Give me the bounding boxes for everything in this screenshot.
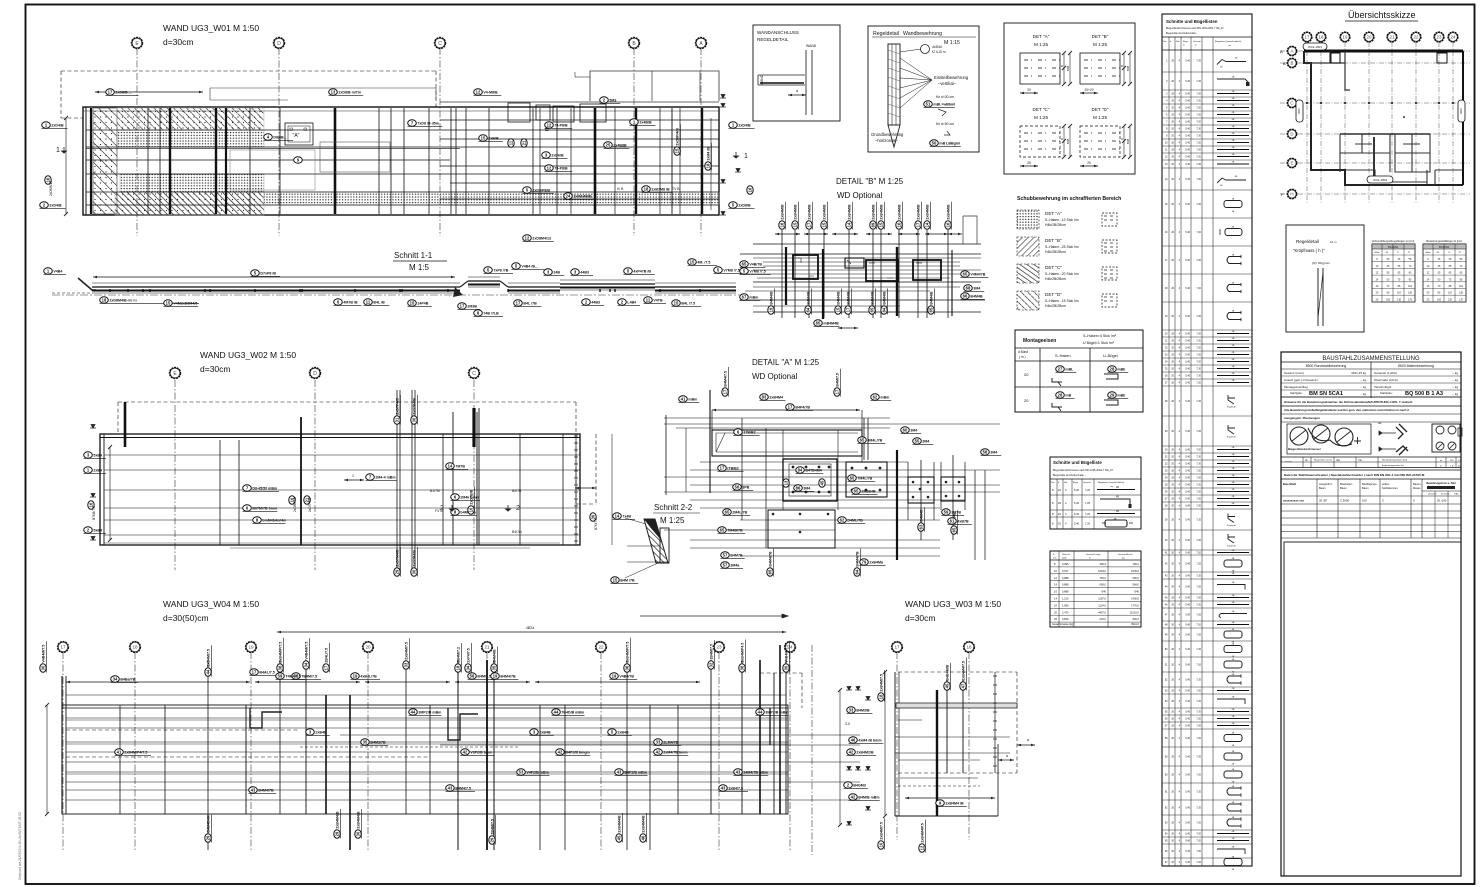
svg-text:7,20: 7,20 [1196,634,1201,637]
svg-text:B4L /7.5: B4L /7.5 [681,302,695,306]
svg-text:V4B4M/7.5: V4B4M/7.5 [42,645,46,663]
svg-text:7,20: 7,20 [1196,850,1201,853]
svg-text:7,20: 7,20 [1196,287,1201,290]
svg-text:7,20: 7,20 [1196,614,1201,617]
svg-text:Masse: Masse [1413,486,1421,490]
svg-text:86: 86 [796,486,801,491]
svg-text:Einstellbewehrung: Einstellbewehrung [934,75,969,80]
svg-text:5,40: 5,40 [1185,178,1190,181]
svg-text:5,40: 5,40 [1185,114,1190,117]
svg-text:"A": "A" [293,133,300,139]
svg-text:mBm: mBm [749,296,758,300]
svg-text:65: 65 [816,321,821,326]
svg-text:170: 170 [1408,298,1413,301]
svg-text:7,20: 7,20 [1196,203,1201,206]
svg-text:5,40: 5,40 [1185,491,1190,494]
svg-text:V4M4/7B: V4M4/7B [970,273,985,277]
svg-text:Gesamt-Masse: Gesamt-Masse [1118,553,1134,556]
svg-text:2xB4M/7.5: 2xB4M/7.5 [880,674,884,692]
svg-text:Schnitte und Bügelliste: Schnitte und Bügelliste [1053,460,1102,465]
svg-text:32: 32 [709,662,714,667]
svg-text:4xP47B /B: 4xP47B /B [633,270,651,274]
svg-text:45: 45 [617,835,622,840]
svg-text:17: 17 [60,645,66,650]
svg-text:7,20: 7,20 [1196,456,1201,459]
svg-text:mBL=wBbml: mBL=wBbml [933,103,955,107]
svg-text:42: 42 [851,795,856,800]
svg-text:4B: 4B [1116,496,1119,499]
svg-text:5,40: 5,40 [1074,488,1080,492]
svg-text:...: ... [1374,392,1377,396]
svg-text:5,40: 5,40 [1185,737,1190,740]
svg-text:für d=50 cm: für d=50 cm [936,122,954,126]
svg-text:43: 43 [736,770,741,775]
svg-text:B4M4/B: B4M4/B [770,291,774,305]
svg-text:B4M /7B: B4M /7B [620,579,635,583]
svg-text:36: 36 [625,665,630,670]
svg-text:T4M4/7.5: T4M4/7.5 [285,675,300,679]
svg-text:V4B4M/7.5: V4B4M/7.5 [785,645,789,663]
svg-text:12: 12 [920,845,925,850]
svg-text:4xB4d: 4xB4d [932,45,942,49]
svg-text:5,40: 5,40 [1185,333,1190,336]
svg-text:B4B: B4B [1066,66,1070,71]
svg-text:7,20: 7,20 [1085,512,1091,516]
svg-text:2xB4M/B: 2xB4M/B [872,204,876,220]
svg-text:2xB4M/P4.5: 2xB4M/P4.5 [741,643,745,663]
svg-text:24: 24 [566,194,571,199]
svg-text:2xB4M4/B: 2xB4M4/B [357,811,361,829]
svg-text:20+20: 20+20 [1085,88,1094,92]
svg-text:F': F' [1281,192,1284,197]
svg-text:2M4L/7B: 2M4L/7B [732,511,747,515]
svg-text:28: 28 [1058,393,1063,398]
svg-text:42: 42 [656,750,661,755]
svg-text:B: B [1120,138,1124,140]
svg-text:17: 17 [324,665,329,670]
svg-text:1,210: 1,210 [1062,597,1069,601]
svg-text:Verbundübergreifungslängen Lü: Verbundübergreifungslängen Lü [cm] [1372,239,1415,243]
svg-text:d/Stm: d/Stm [1425,251,1431,254]
svg-text:B4M4/7B: B4M4/7B [769,551,773,567]
svg-text:Biegeform (unmaßstäblich): Biegeform (unmaßstäblich) [1215,40,1242,43]
svg-text:B4M3/7B: B4M3/7B [370,741,386,745]
svg-text:5,40: 5,40 [1185,774,1190,777]
svg-text:WAND: WAND [806,44,817,48]
svg-text:5,40: 5,40 [1185,100,1190,103]
svg-text:7,20: 7,20 [1196,142,1201,145]
svg-text:5,40: 5,40 [1185,354,1190,357]
svg-text:2xB4M/B: 2xB4M/B [880,204,884,220]
svg-text:mBm: mBm [880,396,889,400]
svg-text:65: 65 [742,262,747,267]
svg-text:5,40: 5,40 [1185,552,1190,555]
svg-text:5,40: 5,40 [1185,368,1190,371]
svg-text:5,40: 5,40 [1185,505,1190,508]
svg-text:18: 18 [1319,35,1324,40]
svg-text:1: 1 [352,474,354,478]
svg-text:V7M8 /7.5: V7M8 /7.5 [723,269,739,273]
svg-text:13: 13 [331,90,336,95]
svg-text:5,40: 5,40 [1074,501,1080,505]
svg-text:17: 17 [807,222,812,227]
svg-text:46: 46 [851,738,856,743]
svg-text:B4M7B: B4M7B [730,554,743,558]
svg-text:7,20: 7,20 [1196,822,1201,825]
svg-text:2xB4M2/B: 2xB4M2/B [856,751,874,755]
svg-text:DET "A": DET "A" [1045,211,1062,216]
svg-text:7,20: 7,20 [1196,400,1201,403]
svg-text:3MP2/B mBm: 3MP2/B mBm [418,711,441,715]
svg-text:B4B: B4B [1126,139,1130,144]
svg-text:65: 65 [929,307,934,312]
svg-text:20: 20 [1024,372,1029,377]
svg-text:2,470: 2,470 [1062,610,1069,614]
svg-text:44: 44 [411,710,416,715]
svg-text:5,40: 5,40 [1074,522,1080,526]
svg-text:15: 15 [793,222,798,227]
svg-text:17: 17 [460,304,465,309]
svg-text:2xB4M/P/7.5: 2xB4M/P/7.5 [279,642,283,663]
svg-text:2xB4M4/B: 2xB4M4/B [336,811,340,829]
svg-text:110: 110 [1459,285,1463,288]
svg-text:7B4M/7.5: 7B4M/7.5 [301,675,317,679]
svg-text:65: 65 [963,272,968,277]
svg-text:WD Optional: WD Optional [752,372,798,381]
svg-text:41: 41 [681,397,686,402]
svg-text:-540: -540 [1101,590,1107,594]
svg-text:29: 29 [206,835,211,840]
svg-text:14: 14 [448,464,453,469]
svg-text:14: 14 [847,222,852,227]
svg-text:Biegemaße sind Außenmaße ↓: Biegemaße sind Außenmaße ↓ [1053,474,1086,477]
svg-text:7,20: 7,20 [1196,149,1201,152]
svg-text:7,20: 7,20 [1196,737,1201,740]
svg-text:20: 20 [1087,161,1091,165]
svg-text:584,0: 584,0 [1133,583,1140,587]
svg-text:1: 1 [744,153,748,160]
svg-text:M 1:15: M 1:15 [944,40,960,46]
svg-text:7,20: 7,20 [1196,519,1201,522]
svg-text:31: 31 [395,417,400,422]
svg-text:30: 30 [356,831,361,836]
svg-text:3M7B: 3M7B [951,511,961,515]
svg-text:18: 18 [102,298,107,303]
svg-text:DETAIL "B" M 1:25: DETAIL "B" M 1:25 [836,177,904,186]
svg-text:C: C [472,371,476,377]
svg-text:30: 30 [784,665,789,670]
svg-text:135: 135 [1459,292,1464,295]
svg-text:7,20: 7,20 [1196,128,1201,131]
svg-text:7M4L/7B: 7M4L/7B [857,477,872,481]
svg-text:7,20: 7,20 [1196,114,1201,117]
svg-text:7,20: 7,20 [1196,354,1201,357]
svg-text:UG3–W04: UG3–W04 [1373,178,1387,182]
svg-text:17: 17 [723,389,728,394]
svg-text:1124,0: 1124,0 [1098,603,1106,607]
svg-text:12: 12 [547,166,552,171]
svg-text:Montagezuschlag: Montagezuschlag [1284,385,1308,389]
svg-text:WAND UG3_W03 M 1:50: WAND UG3_W03 M 1:50 [905,599,1001,609]
svg-text:V3P2/B bmm: V3P2/B bmm [470,751,492,755]
svg-text:2xB4B: 2xB4B [315,731,327,735]
svg-text:7,20: 7,20 [1196,470,1201,473]
svg-text:DET "D": DET "D" [1092,107,1109,112]
svg-text:B4M4/7B: B4M4/7B [500,675,516,679]
svg-text:Biegerollendurchmesser: Biegerollendurchmesser [1288,447,1322,451]
svg-text:69: 69 [871,222,876,227]
svg-text:53: 53 [519,770,524,775]
svg-text:135: 135 [1408,292,1413,295]
svg-text:Büge: Büge [1073,482,1079,484]
svg-text:Bewehrungsstoßlängen ls [cm]: Bewehrungsstoßlängen ls [cm] [1426,239,1462,243]
svg-text:30: 30 [412,417,417,422]
svg-text:19: 19 [1343,35,1348,40]
svg-text:U–Bügel: U–Bügel [1103,354,1118,358]
svg-text:65: 65 [854,489,859,494]
svg-text:2xD7P4/B: 2xD7P4/B [308,498,312,512]
svg-text:kg/m: kg/m [1062,558,1067,560]
svg-text:18: 18 [879,694,884,699]
svg-text:7,20: 7,20 [1196,539,1201,542]
svg-text:65: 65 [870,307,875,312]
svg-text:B4/7m: B4/7m [512,530,522,534]
svg-text:4M7B /B: 4M7B /B [343,301,358,305]
svg-text:2xD4/B: 2xD4/B [49,204,62,208]
svg-text:Alle Bewehrungsstöße/Bügelabst: Alle Bewehrungsstöße/Bügelabstände wurde… [1284,408,1409,412]
svg-text:H4b/2B/2Bcm: H4b/2B/2Bcm [1045,304,1066,308]
svg-text:15: 15 [836,307,841,312]
svg-text:7,20: 7,20 [1196,597,1201,600]
svg-text:2xD8M4/13: 2xD8M4/13 [532,237,551,241]
svg-text:7M4B/7B: 7M4B/7B [727,529,743,533]
svg-text:5,40: 5,40 [1185,833,1190,836]
svg-text:...: ... [1284,392,1287,396]
svg-text:B4TB4M4: B4TB4M4 [805,469,821,473]
svg-text:B4M4/7.5: B4M4/7.5 [724,371,728,387]
svg-text:2M3B: 2M3B [467,305,477,309]
svg-text:17B/B2: 17B/B2 [743,431,755,435]
svg-text:5,40: 5,40 [1185,791,1190,794]
svg-text:5,40: 5,40 [1185,711,1190,714]
svg-text:4B: 4B [1116,510,1119,513]
svg-text:B4M4/B: B4M4/B [930,291,934,305]
svg-text:7,20: 7,20 [1196,679,1201,682]
svg-text:5,40: 5,40 [1185,725,1190,728]
svg-text:5,40: 5,40 [1185,861,1190,864]
svg-text:d=30cm: d=30cm [200,364,230,374]
svg-text:V4B4: V4B4 [53,270,62,274]
svg-text:2xD8/B/15: 2xD8/B/15 [49,181,53,196]
svg-text:36: 36 [740,665,745,670]
svg-text:3,850: 3,850 [1062,617,1069,621]
svg-text:33: 33 [404,662,409,667]
svg-text:mBL: mBL [1065,368,1074,372]
svg-text:3M4: 3M4 [910,429,917,433]
svg-text:S–Haken...25 Stck /m²: S–Haken...25 Stck /m² [1045,245,1080,249]
svg-text:15: 15 [674,301,679,306]
svg-text:2xD8/B ...: 2xD8/B ... [115,91,131,95]
svg-text:46: 46 [641,835,646,840]
svg-text:m: m [1089,558,1091,560]
svg-text:60: 60 [903,428,908,433]
svg-text:B1/7M: B1/7M [430,489,440,493]
svg-text:7,20: 7,20 [1196,382,1201,385]
svg-text:8600 Mattenbewehrung: 8600 Mattenbewehrung [1398,364,1434,368]
svg-text:16: 16 [780,222,785,227]
svg-text:7,20: 7,20 [1196,575,1201,578]
svg-text:5,40: 5,40 [1185,718,1190,721]
svg-text:17: 17 [788,405,793,410]
svg-text:45: 45 [945,683,950,688]
svg-text:2xB4M/7.5: 2xB4M/7.5 [207,649,211,667]
svg-text:5,40: 5,40 [1185,93,1190,96]
svg-text:66: 66 [963,294,968,299]
svg-text:21: 21 [522,140,527,145]
svg-text:REGELDETAIL: REGELDETAIL [757,37,789,42]
svg-text:B4B: B4B [1066,139,1070,144]
svg-text:2xD7P4/B: 2xD7P4/B [413,398,417,415]
svg-text:14: 14 [615,514,620,519]
svg-text:1,580: 1,580 [1062,603,1069,607]
svg-text:2B4L/7.5: 2B4L/7.5 [325,648,329,663]
svg-text:7,20: 7,20 [1196,80,1201,83]
svg-text:Verschnittgür: Verschnittgür [1374,385,1392,389]
svg-text:V4B4 /B...: V4B4 /B... [521,265,538,269]
svg-text:2xD8M4/B 4TB /7.5: 2xD8M4/B 4TB /7.5 [109,299,137,303]
svg-text:–horizontal–: –horizontal– [875,138,898,143]
svg-text:2xB4M4/B: 2xB4M4/B [642,815,646,833]
svg-text:Stk.: Stk. [1176,40,1180,43]
svg-text:5,40: 5,40 [1185,539,1190,542]
svg-text:57: 57 [723,553,728,558]
svg-text:WANDANSCHLUSS: WANDANSCHLUSS [757,30,799,35]
svg-text:2M4-4 mBm: 2M4-4 mBm [375,476,395,480]
svg-text:2xB4M4: 2xB4M4 [769,396,783,400]
svg-text:5,40: 5,40 [1185,624,1190,627]
svg-text:DETAIL "A" M 1:25: DETAIL "A" M 1:25 [752,358,820,367]
svg-text:1694,0: 1694,0 [1098,569,1106,573]
svg-text:1045,0: 1045,0 [1131,569,1139,573]
svg-text:10: 10 [879,842,884,847]
svg-text:5,40: 5,40 [1185,430,1190,433]
svg-text:2xB4M/B: 2xB4M/B [808,204,812,220]
svg-text:2B4M/7.5: 2B4M/7.5 [491,819,495,835]
svg-text:– kg: – kg [1452,378,1458,382]
svg-text:WD Optional: WD Optional [837,191,883,200]
svg-text:D: D [1290,132,1293,137]
svg-text:3M4a: 3M4a [730,564,740,568]
svg-text:5,40: 5,40 [1185,807,1190,810]
svg-text:Hinweise für die Bewehrungsabn: Hinweise für die Bewehrungsabnahme: die … [1284,400,1413,404]
svg-text:Gedruckt am 21/05/13 9:46 Uhr: Gedruckt am 21/05/13 9:46 Uhr BV71/MT-05… [18,812,22,880]
svg-text:5,40: 5,40 [1185,519,1190,522]
svg-text:_____: _____ [1284,459,1293,462]
svg-text:1776,0: 1776,0 [1131,603,1139,607]
svg-text:1: 1 [56,147,60,154]
svg-text:C 5000: C 5000 [1340,499,1349,503]
svg-text:B4B: B4B [1126,66,1130,71]
svg-text:Regeldetail: Regeldetail [873,31,899,37]
svg-text:16: 16 [748,187,753,192]
svg-text:7,20: 7,20 [1196,315,1201,318]
svg-text:7,20: 7,20 [1196,840,1201,843]
svg-text:105: 105 [1437,298,1442,301]
svg-text:5,40: 5,40 [1185,850,1190,853]
svg-text:Bau-Stahl: Bau-Stahl [1283,482,1296,486]
svg-text:DET "D": DET "D" [1045,292,1062,297]
svg-text:33: 33 [849,708,854,713]
svg-text:23: 23 [716,645,722,650]
svg-text:B4B4M/B: B4B4M/B [946,664,950,680]
svg-text:28: 28 [1110,367,1115,372]
svg-text:3PB: 3PB [742,486,749,490]
svg-text:2xB4Ma: 2xB4Ma [869,561,884,565]
svg-text:11: 11 [509,140,514,145]
svg-text:5,40: 5,40 [1185,287,1190,290]
svg-text:2xD7P4/B: 2xD7P4/B [413,550,417,567]
svg-text:7,20: 7,20 [1196,259,1201,262]
svg-text:"Kröpfmass ( h )": "Kröpfmass ( h )" [1293,248,1325,253]
svg-text:24M4/7B mBm: 24M4/7B mBm [743,771,768,775]
svg-text:43: 43 [251,788,256,793]
svg-text:16: 16 [946,222,951,227]
svg-text:B4M4/B: B4M4/B [807,291,811,305]
svg-text:B4M4/7B: B4M4/7B [258,789,274,793]
svg-text:[h]= 30(g)mm: [h]= 30(g)mm [1312,261,1330,265]
svg-text:Stahlgüte:: Stahlgüte: [1380,391,1393,395]
svg-text:7,20: 7,20 [1196,833,1201,836]
svg-text:Krüpfmaß: Krüpfmaß [1227,437,1237,439]
svg-text:27: 27 [1058,367,1063,372]
svg-text:2xP4/7.5: 2xP4/7.5 [467,648,471,662]
svg-text:34: 34 [113,677,118,682]
svg-text:5,40: 5,40 [1185,648,1190,651]
svg-text:C: C [438,41,442,47]
svg-text:DET "B": DET "B" [1045,238,1062,243]
svg-text:mB4M4B: mB4M4B [823,322,839,326]
svg-text:cm: cm [1110,486,1113,488]
svg-text:19: 19 [248,645,254,650]
svg-text:D7xP8 /B: D7xP8 /B [260,272,276,276]
svg-text:4xB7B: 4xB7B [957,520,969,524]
svg-text:7,20: 7,20 [1196,375,1201,378]
svg-text:Baum: Baum [1340,486,1347,490]
svg-text:Übergreifungslängen [cm]: Übergreifungslängen [cm] [1382,459,1407,462]
svg-text:Gesamt (norm): Gesamt (norm) [1284,371,1304,375]
svg-text:51: 51 [926,102,931,107]
svg-text:15: 15 [410,301,415,306]
svg-text:170: 170 [1459,298,1464,301]
svg-text:a: a [1027,738,1029,742]
svg-text:5,40: 5,40 [1185,231,1190,234]
svg-text:34: 34 [466,665,471,670]
svg-text:395,0: 395,0 [1100,562,1107,566]
svg-text:5,40: 5,40 [1185,604,1190,607]
svg-text:2xB4M4/7.5: 2xB4M4/7.5 [962,661,966,681]
svg-text:110: 110 [1397,292,1401,295]
svg-text:-540: -540 [1134,590,1140,594]
svg-text:3941,45 kg: 3941,45 kg [1351,371,1366,375]
svg-text:65: 65 [768,569,773,574]
svg-text:W03: W03 [1459,108,1463,114]
svg-text:7,20: 7,20 [1196,121,1201,124]
svg-text:4B2a: 4B2a [526,626,534,630]
svg-text:B4L /B: B4L /B [373,301,385,305]
svg-text:5,40: 5,40 [1185,664,1190,667]
svg-text:B4M4/B: B4M4/B [871,291,875,305]
svg-text:83: 83 [762,395,767,400]
